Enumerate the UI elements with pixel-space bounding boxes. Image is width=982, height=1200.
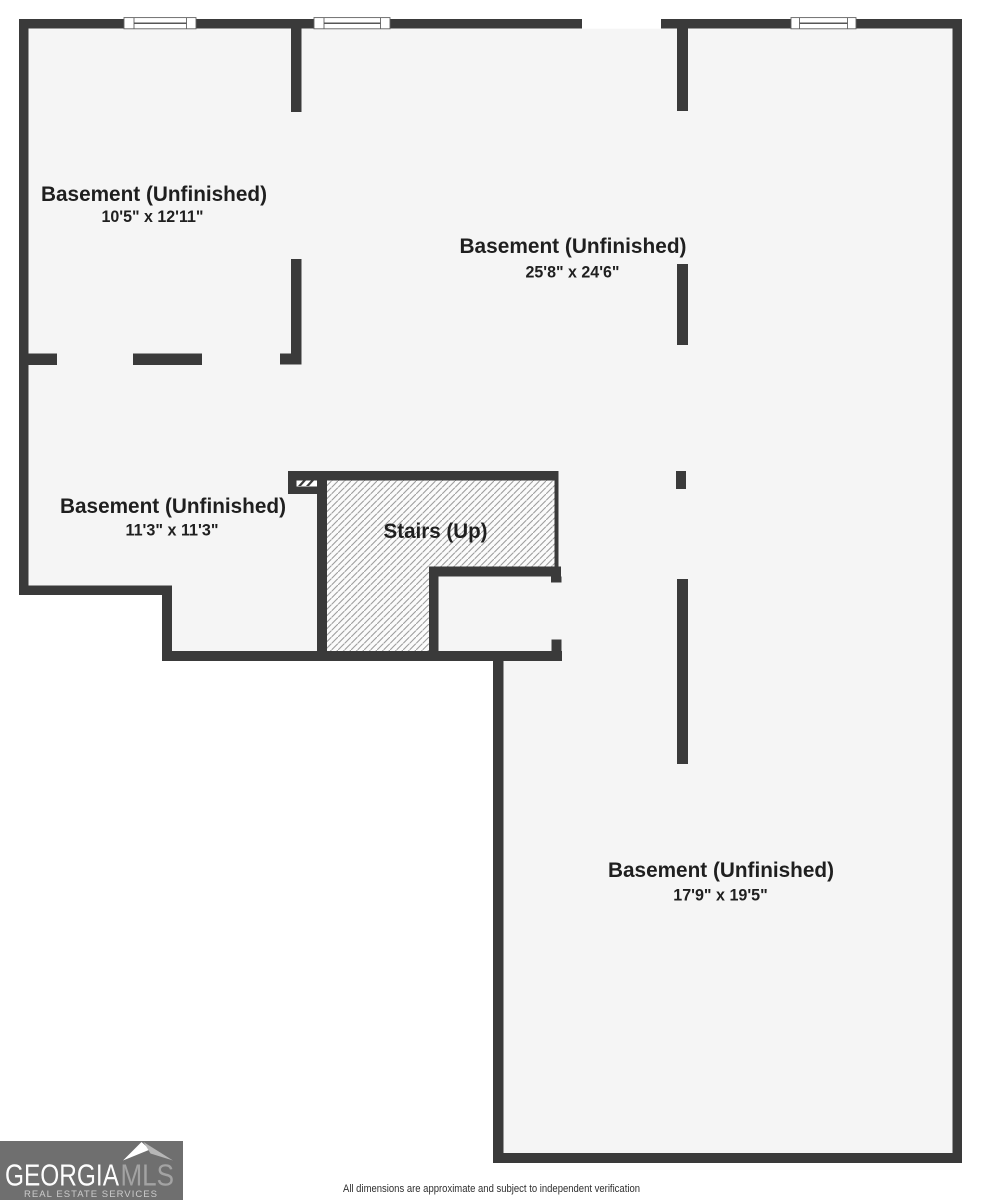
svg-text:Basement (Unfinished): Basement (Unfinished)	[608, 859, 834, 882]
svg-text:REAL ESTATE SERVICES: REAL ESTATE SERVICES	[24, 1189, 157, 1200]
svg-text:Stairs (Up): Stairs (Up)	[384, 520, 488, 543]
svg-text:Basement (Unfinished): Basement (Unfinished)	[60, 495, 286, 518]
svg-text:Basement (Unfinished): Basement (Unfinished)	[41, 183, 267, 206]
svg-text:All dimensions are approximate: All dimensions are approximate and subje…	[343, 1183, 640, 1195]
svg-text:MLS: MLS	[121, 1158, 175, 1192]
svg-text:GEORGIA: GEORGIA	[5, 1158, 120, 1192]
svg-text:17'9" x 19'5": 17'9" x 19'5"	[673, 886, 768, 905]
svg-text:11'3" x 11'3": 11'3" x 11'3"	[126, 521, 219, 540]
svg-text:Basement (Unfinished): Basement (Unfinished)	[460, 235, 687, 258]
svg-text:25'8" x 24'6": 25'8" x 24'6"	[526, 263, 620, 282]
svg-text:10'5" x 12'11": 10'5" x 12'11"	[102, 207, 204, 226]
